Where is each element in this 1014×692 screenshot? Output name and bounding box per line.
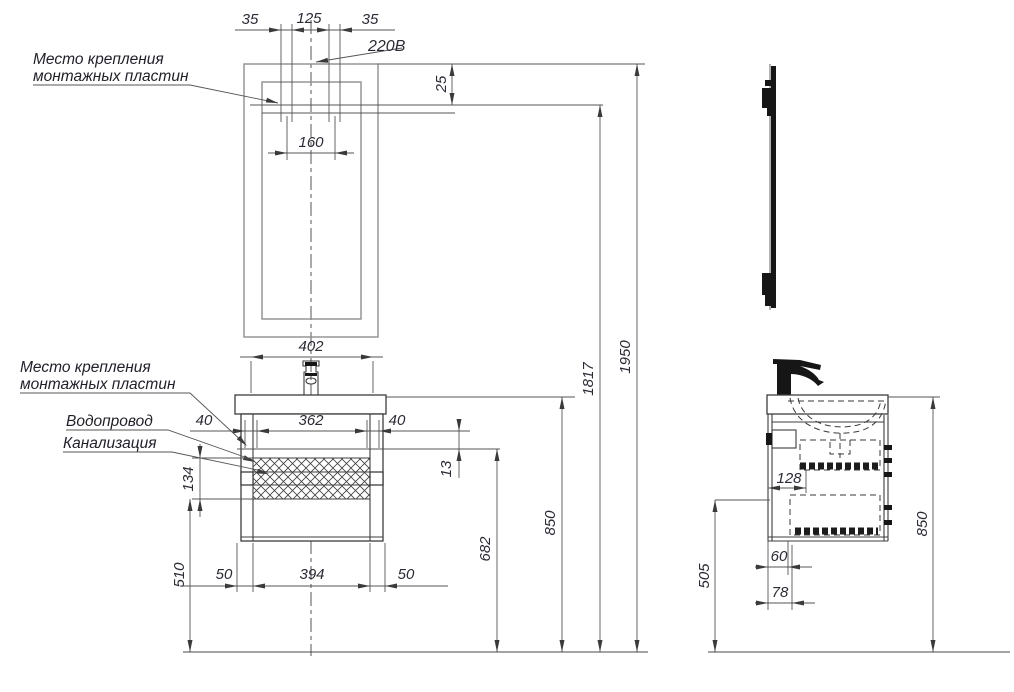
dim-water-pipe-depth: 60 (771, 548, 788, 565)
dim-mirror-top-to-plates: 25 (433, 75, 450, 93)
dim-cabinet-plate-offset-right: 40 (389, 412, 406, 429)
dim-cabinet-plate-spacing: 362 (298, 412, 324, 429)
dim-mirror-top-height: 1950 (617, 340, 634, 374)
siphon-box-detail (766, 433, 772, 445)
dim-side-worktop-height: 850 (914, 511, 931, 537)
dim-leg-offset-right: 50 (398, 566, 415, 583)
sewerage-label: Канализация (63, 435, 157, 452)
drawer-lower (790, 495, 880, 535)
front-view: 35 125 35 220В 25 Место крепления монтаж… (20, 10, 648, 656)
dim-lower-zone-height: 505 (696, 563, 713, 589)
dim-cabinet-plate-offset-left: 40 (196, 412, 213, 429)
sewerage-leader (63, 452, 267, 472)
power-label: 220В (367, 38, 406, 55)
mirror-plates-leader (33, 85, 278, 103)
side-notch-right (370, 472, 383, 485)
cabinet-plates-label-line1: Место крепления (20, 359, 151, 376)
dim-leg-offset-left: 50 (216, 566, 233, 583)
dim-pipe-offset: 13 (438, 460, 455, 477)
water-supply-label: Водопровод (66, 413, 153, 430)
dim-plate-offset-left: 35 (242, 11, 259, 28)
mirror-plates-label-line1: Место крепления (33, 51, 164, 68)
dim-washbasin-width: 402 (298, 338, 324, 355)
power-leader-arrow (316, 58, 328, 63)
side-notch-left (241, 472, 253, 485)
technical-drawing: 35 125 35 220В 25 Место крепления монтаж… (0, 0, 1014, 692)
cabinet-plates-label-line2: монтажных пластин (20, 376, 176, 393)
dim-sewer-pipe-depth: 78 (772, 584, 789, 601)
dim-plate-centers: 160 (298, 134, 324, 151)
dim-mirror-plates-height: 1817 (580, 362, 597, 396)
dim-bottom-zone-height: 510 (171, 562, 188, 588)
mirror-inner-frame (262, 82, 361, 319)
side-view: 128 505 60 78 850 (696, 64, 1010, 652)
dim-drawer-depth: 128 (776, 470, 802, 487)
faucet-side (773, 359, 824, 395)
dim-pipe-zone-height: 134 (180, 466, 197, 491)
mirror-side-profile (762, 64, 776, 310)
dim-leg-spacing: 394 (299, 566, 324, 583)
drain-pipe (830, 433, 850, 458)
dim-cabinet-plates-height: 682 (477, 536, 494, 562)
dim-plate-offset-right: 35 (362, 11, 379, 28)
dim-worktop-height: 850 (542, 510, 559, 536)
dim-plate-spacing: 125 (296, 10, 322, 27)
siphon-box (772, 430, 796, 448)
mirror-plates-label-line2: монтажных пластин (33, 68, 189, 85)
pipe-zone-hatch (253, 458, 370, 499)
dim-505-line (715, 500, 770, 652)
worktop-side (767, 395, 888, 414)
